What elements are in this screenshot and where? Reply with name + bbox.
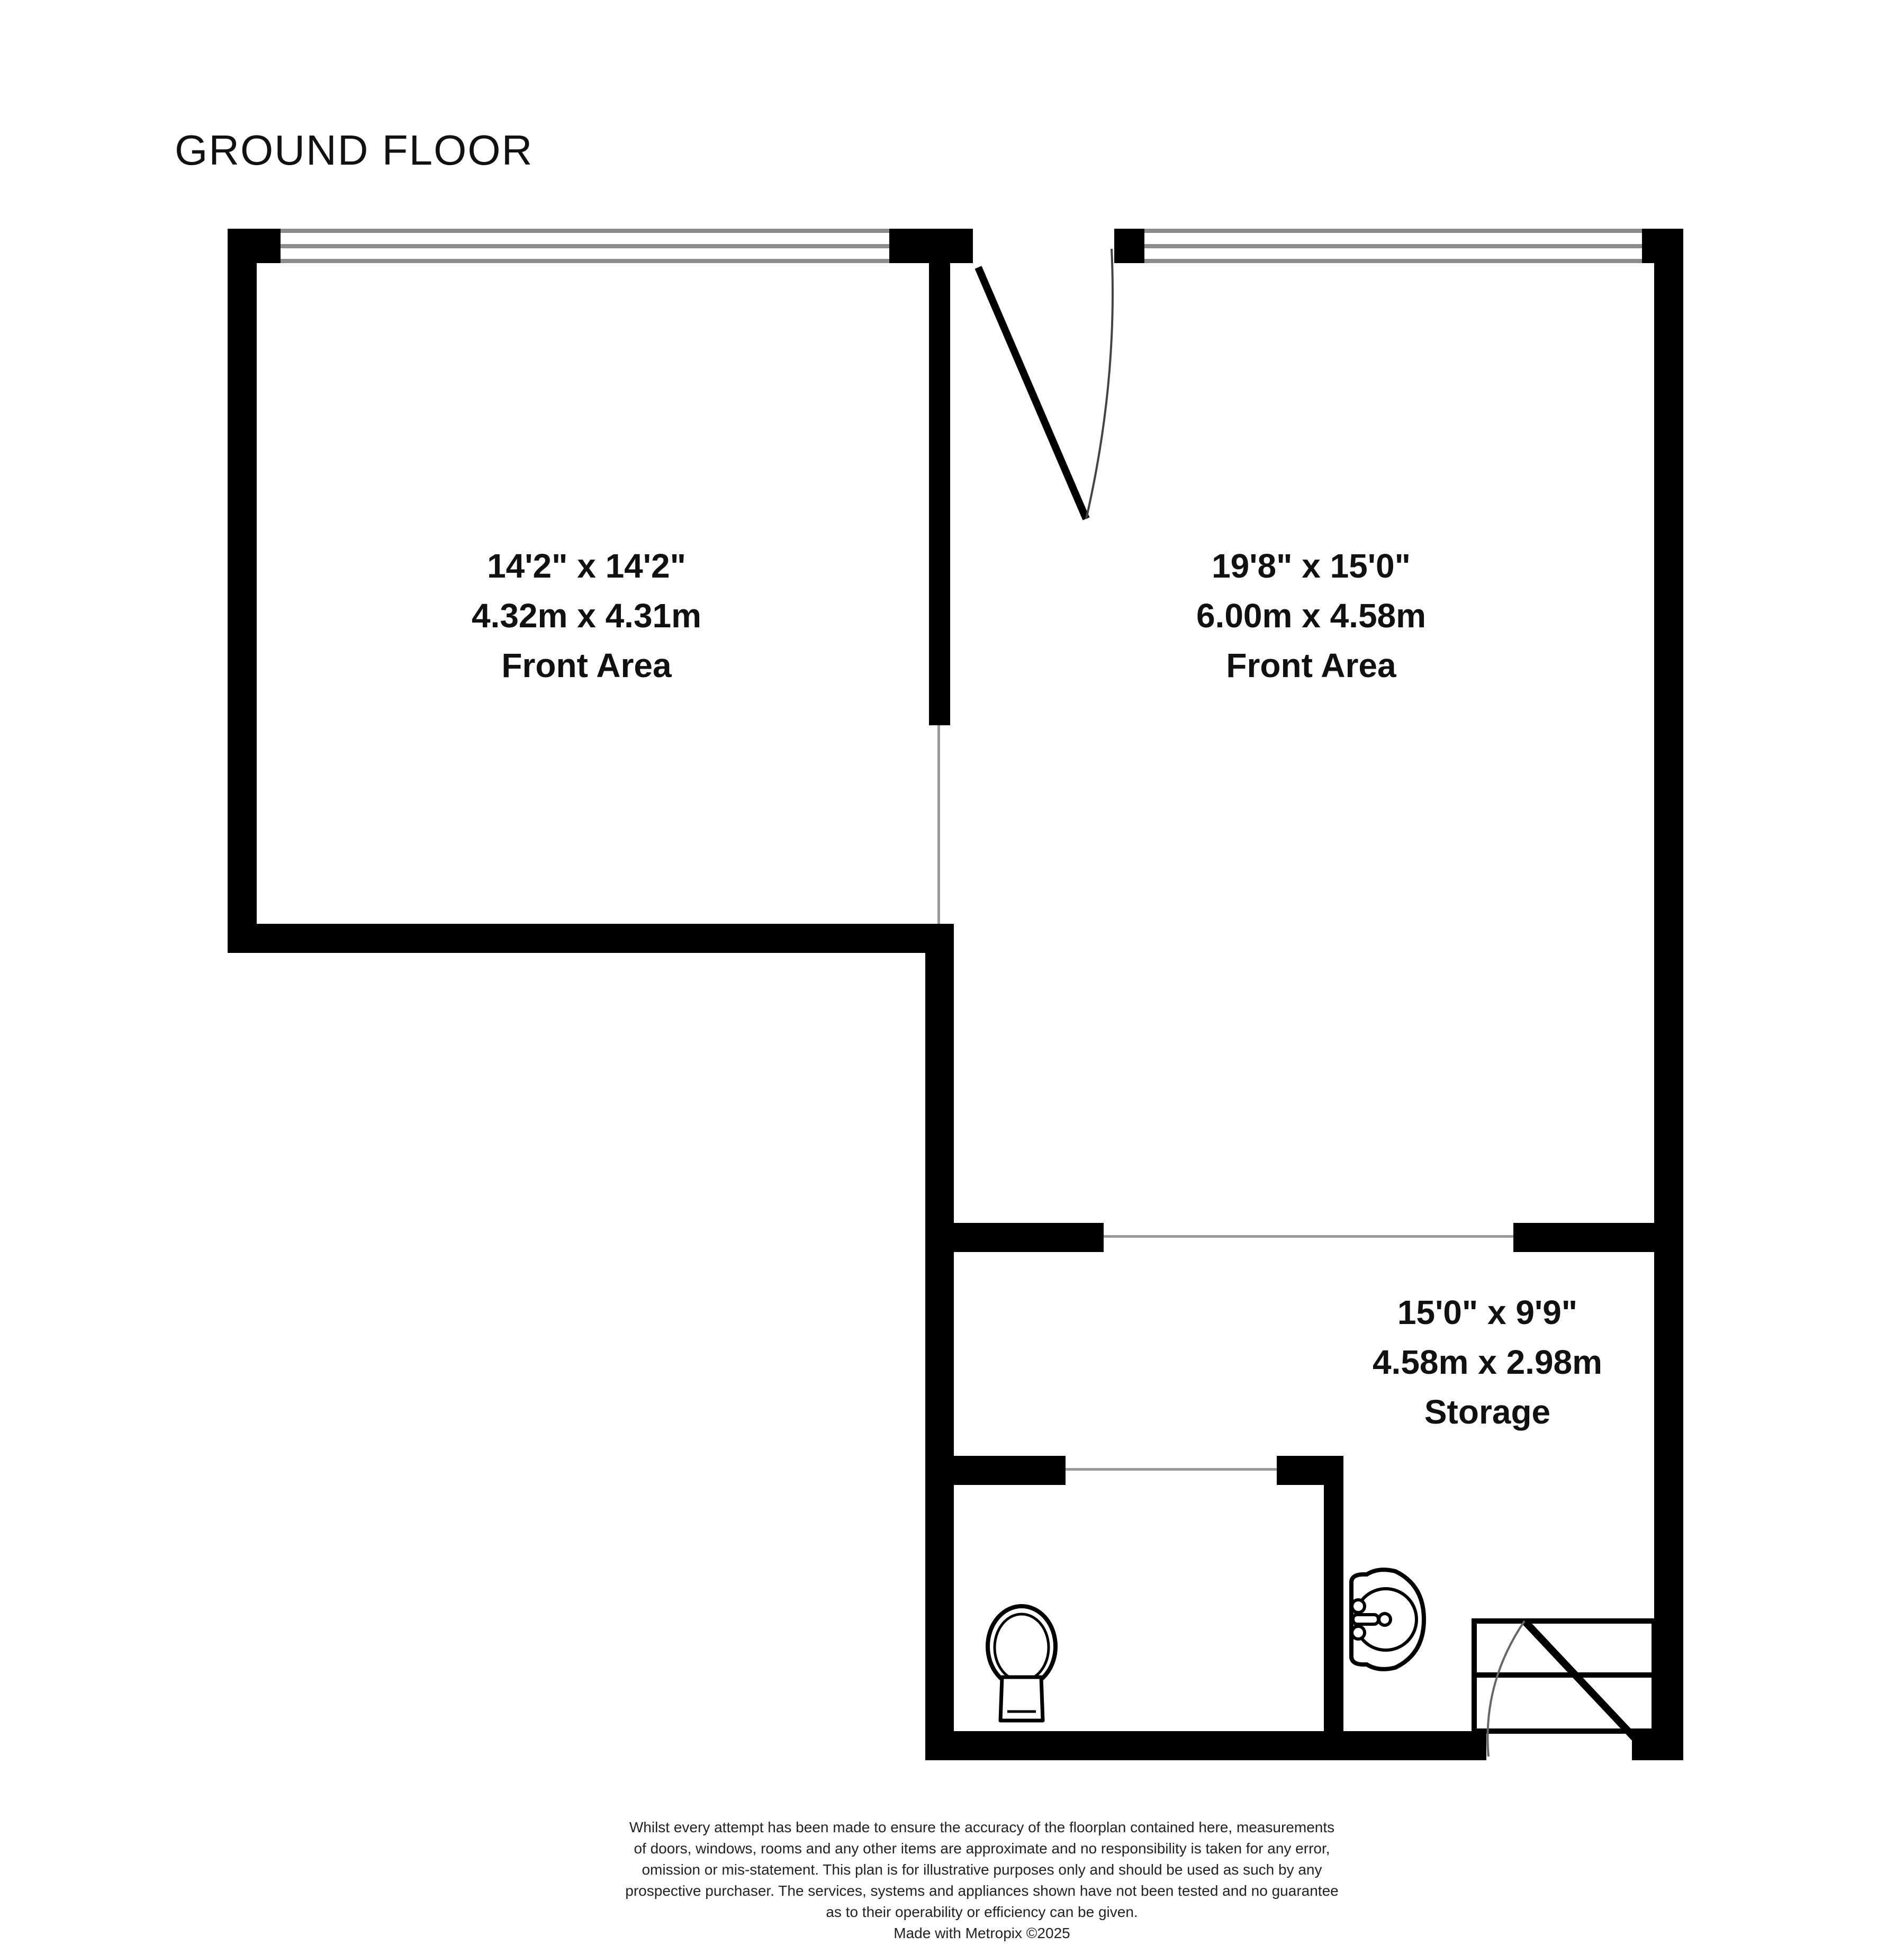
disclaimer-line: as to their operability or efficiency ca… <box>558 1902 1405 1923</box>
door-swing-arc <box>1086 249 1113 519</box>
front-entry-door <box>978 249 1113 519</box>
room-dim-imperial: 14'2" x 14'2" <box>348 541 825 591</box>
room-dim-imperial: 15'0" x 9'9" <box>1276 1287 1699 1337</box>
room-dim-imperial: 19'8" x 15'0" <box>1073 541 1549 591</box>
disclaimer-line: of doors, windows, rooms and any other i… <box>558 1838 1405 1859</box>
room-dim-metric: 4.58m x 2.98m <box>1276 1337 1699 1387</box>
tap-handle <box>1352 1600 1365 1613</box>
disclaimer-line: Whilst every attempt has been made to en… <box>558 1817 1405 1838</box>
disclaimer: Whilst every attempt has been made to en… <box>558 1817 1405 1944</box>
room-name: Storage <box>1276 1387 1699 1437</box>
disclaimer-line: omission or mis-statement. This plan is … <box>558 1859 1405 1880</box>
door-leaf <box>1524 1621 1636 1739</box>
drain <box>1379 1614 1391 1625</box>
disclaimer-line: prospective purchaser. The services, sys… <box>558 1880 1405 1902</box>
room-name: Front Area <box>1073 641 1549 690</box>
disclaimer-credit: Made with Metropix ©2025 <box>558 1923 1405 1944</box>
toilet-icon <box>988 1606 1055 1721</box>
room-dim-metric: 6.00m x 4.58m <box>1073 591 1549 641</box>
fixtures-layer <box>0 0 1904 1954</box>
rear-entry-door <box>1487 1621 1636 1757</box>
tap-handle <box>1352 1626 1365 1639</box>
room-label-front-area-right: 19'8" x 15'0" 6.00m x 4.58m Front Area <box>1073 541 1549 690</box>
tap-spout <box>1353 1615 1378 1624</box>
room-name: Front Area <box>348 641 825 690</box>
door-swing-arc <box>1487 1621 1524 1757</box>
sink-icon <box>1351 1570 1424 1669</box>
door-leaf <box>978 267 1086 519</box>
floorplan-page: GROUND FLOOR <box>0 0 1904 1954</box>
room-label-front-area-left: 14'2" x 14'2" 4.32m x 4.31m Front Area <box>348 541 825 690</box>
stairs <box>1474 1621 1654 1731</box>
room-dim-metric: 4.32m x 4.31m <box>348 591 825 641</box>
room-label-storage: 15'0" x 9'9" 4.58m x 2.98m Storage <box>1276 1287 1699 1437</box>
